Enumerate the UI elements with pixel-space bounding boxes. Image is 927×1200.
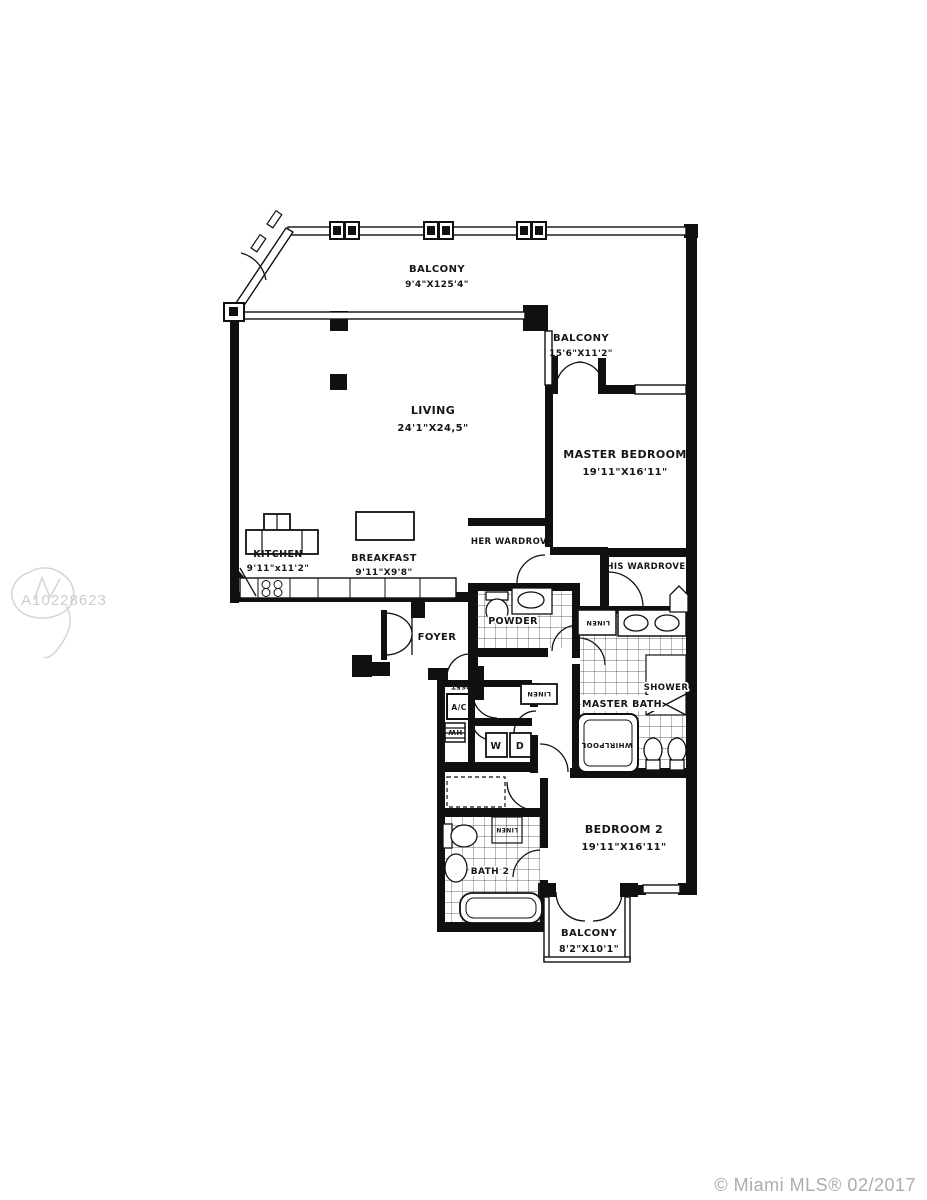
sink-icon xyxy=(655,615,679,631)
powder-label: POWDER xyxy=(488,616,538,627)
linen-master-label: LINEN xyxy=(586,619,610,627)
balcony-top-dims: 9'4"X125'4" xyxy=(405,280,469,290)
washer-label: W xyxy=(491,741,502,752)
whirlpool-label: WHIRLPOOL xyxy=(581,741,632,749)
toilet-icon xyxy=(451,825,477,847)
mls-watermark: A10228623 xyxy=(12,568,107,658)
kitchen-label: KITCHEN xyxy=(253,549,303,560)
mls-copyright: © Miami MLS® 02/2017 xyxy=(714,1175,916,1195)
mls-logo-icon xyxy=(12,568,74,658)
linen-hall-label: LINEN xyxy=(527,690,551,698)
dryer-label: D xyxy=(516,741,524,752)
bedroom2-label: BEDROOM 2 xyxy=(585,823,663,836)
balcony-top-label: BALCONY xyxy=(409,264,465,275)
master-bedroom-label: MASTER BEDROOM xyxy=(563,448,686,461)
floor-plan-page: BALCONY 9'4"X125'4" BALCONY 15'6"X11'2" … xyxy=(0,0,927,1200)
breakfast-dims: 9'11"X9'8" xyxy=(355,568,412,578)
bath2-label: BATH 2 xyxy=(471,867,510,877)
bedroom2-dims: 19'11"X16'11" xyxy=(581,842,666,853)
kitchen-dims: 9'11"x11'2" xyxy=(247,564,310,574)
linen-bath2-label: LINEN xyxy=(496,826,518,833)
his-wardrobe-label: HIS WARDROVE xyxy=(606,562,685,572)
balcony-bottom-dims: 8'2"X10'1" xyxy=(559,944,619,955)
corner-shelf xyxy=(670,586,688,612)
balcony-columns xyxy=(224,222,546,321)
master-bedroom-dims: 19'11"X16'11" xyxy=(582,467,667,478)
master-bath-label: MASTER BATH xyxy=(582,699,662,710)
breakfast-bar xyxy=(356,512,414,540)
closet-label: CLOSET xyxy=(451,683,481,691)
watermark-id: A10228623 xyxy=(21,592,107,609)
her-wardrobe-label: HER WARDROVE xyxy=(471,537,553,547)
floor-plan-drawing: BALCONY 9'4"X125'4" BALCONY 15'6"X11'2" … xyxy=(0,0,927,1200)
hw-label: HW xyxy=(448,728,462,736)
ac-label: A/C xyxy=(451,703,466,712)
sink-icon xyxy=(518,592,544,608)
balcony-master-label: BALCONY xyxy=(553,333,609,344)
living-dims: 24'1"X24,5" xyxy=(397,423,468,434)
sink-icon xyxy=(445,854,467,882)
balcony-master-dims: 15'6"X11'2" xyxy=(549,349,613,359)
balcony-bottom-label: BALCONY xyxy=(561,928,617,939)
bidet-icon xyxy=(668,738,686,762)
foyer-label: FOYER xyxy=(418,632,457,643)
breakfast-label: BREAKFAST xyxy=(351,553,417,564)
closet-shelves xyxy=(447,777,505,807)
sink-icon xyxy=(624,615,648,631)
living-label: LIVING xyxy=(411,404,455,417)
toilet-icon xyxy=(644,738,662,762)
shower-label: SHOWER xyxy=(644,683,689,693)
bath2-fixtures xyxy=(443,777,542,923)
